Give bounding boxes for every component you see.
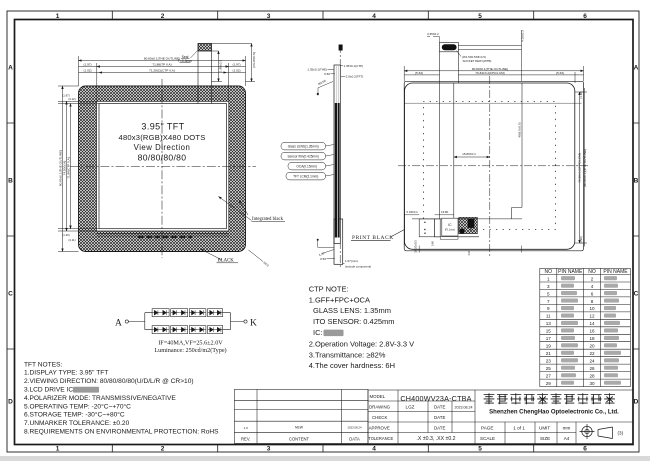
svg-text:80.80±0.1(THE OUTLINE): 80.80±0.1(THE OUTLINE) bbox=[144, 56, 180, 60]
svg-text:3.LCD DRIVE IC: 3.LCD DRIVE IC bbox=[24, 387, 73, 394]
svg-text:UMIT: UMIT bbox=[539, 426, 550, 431]
svg-text:20: 20 bbox=[589, 344, 595, 349]
svg-text:3: 3 bbox=[547, 284, 550, 289]
svg-text:1.0: 1.0 bbox=[244, 426, 249, 430]
svg-text:SCALE: SCALE bbox=[480, 436, 495, 441]
svg-text:8.REQUIREMENTS ON ENVIRONMENTA: 8.REQUIREMENTS ON ENVIRONMENTAL PROTECTI… bbox=[24, 429, 219, 436]
svg-text:OCA(0.15mm): OCA(0.15mm) bbox=[296, 165, 317, 169]
svg-text:2: 2 bbox=[591, 276, 594, 281]
svg-text:1.35±0.1(CTP): 1.35±0.1(CTP) bbox=[344, 64, 364, 68]
svg-text:(1.97): (1.97) bbox=[83, 62, 91, 66]
svg-text:71.28(C)(CTP V.A): 71.28(C)(CTP V.A) bbox=[149, 68, 175, 72]
svg-text:5: 5 bbox=[478, 13, 482, 20]
svg-text:4: 4 bbox=[591, 284, 594, 289]
svg-text:Luminance: 250cd/m2(Type): Luminance: 250cd/m2(Type) bbox=[154, 347, 226, 354]
svg-text:2: 2 bbox=[161, 446, 165, 453]
svg-text:28: 28 bbox=[589, 374, 595, 379]
svg-text:2023.08.24: 2023.08.24 bbox=[455, 405, 473, 409]
svg-text:DATE: DATE bbox=[434, 425, 445, 430]
svg-text:PIN NAME: PIN NAME bbox=[603, 269, 628, 275]
svg-text:Shenzhen ChengHao Optoelectron: Shenzhen ChengHao Optoelectronic Co., Lt… bbox=[489, 410, 619, 416]
svg-text:CHECK: CHECK bbox=[372, 415, 387, 420]
svg-text:6: 6 bbox=[591, 291, 594, 296]
svg-text:(1.97): (1.97) bbox=[232, 62, 240, 66]
svg-text:A4: A4 bbox=[564, 436, 570, 441]
svg-text:DATA: DATA bbox=[349, 436, 360, 441]
svg-text:79.84±0.2(FPC/LCM): 79.84±0.2(FPC/LCM) bbox=[475, 71, 504, 75]
svg-text:1: 1 bbox=[56, 13, 60, 20]
svg-text:30: 30 bbox=[589, 381, 595, 386]
svg-text:24: 24 bbox=[589, 359, 595, 364]
svg-text:19.20±0.5: 19.20±0.5 bbox=[414, 240, 418, 253]
svg-text:1.07(mm): 1.07(mm) bbox=[345, 259, 358, 263]
svg-text:(1.40): (1.40) bbox=[62, 233, 69, 237]
svg-text:IF=40MA,VF=25.6±2.0V: IF=40MA,VF=25.6±2.0V bbox=[158, 340, 223, 347]
svg-text:GLASS LENS: 1.35mm: GLASS LENS: 1.35mm bbox=[313, 306, 391, 315]
svg-text:17: 17 bbox=[546, 336, 552, 341]
svg-text:4.10±0.3: 4.10±0.3 bbox=[520, 30, 524, 42]
svg-text:Glass LENS(1.35mm): Glass LENS(1.35mm) bbox=[288, 145, 319, 149]
svg-text:IC:: IC: bbox=[313, 328, 323, 337]
svg-text:3: 3 bbox=[267, 13, 271, 20]
svg-text:1.GFF+FPC+OCA: 1.GFF+FPC+OCA bbox=[309, 295, 370, 304]
svg-text:5.OPERATING TEMP: -20°C~+70°C: 5.OPERATING TEMP: -20°C~+70°C bbox=[24, 402, 131, 410]
svg-text:10: 10 bbox=[589, 306, 595, 311]
svg-text:3.95" TFT: 3.95" TFT bbox=[141, 122, 184, 132]
svg-text:0.33±0.1: 0.33±0.1 bbox=[407, 210, 419, 214]
svg-text:mm: mm bbox=[563, 426, 571, 431]
svg-text:15.80±0.1: 15.80±0.1 bbox=[462, 152, 476, 156]
svg-text:(include component): (include component) bbox=[345, 265, 371, 269]
svg-text:CH400WV23A-CTBA: CH400WV23A-CTBA bbox=[400, 394, 471, 403]
svg-text:19.80: 19.80 bbox=[441, 210, 449, 214]
svg-text:11: 11 bbox=[546, 314, 551, 319]
svg-text:(1.98): (1.98) bbox=[579, 236, 583, 243]
svg-text:View Direction: View Direction bbox=[134, 143, 191, 152]
svg-text:80/80/80/80: 80/80/80/80 bbox=[138, 153, 187, 163]
svg-text:DRAWING: DRAWING bbox=[369, 404, 391, 409]
svg-text:(3.12): (3.12) bbox=[68, 97, 75, 101]
svg-text:29: 29 bbox=[546, 381, 552, 386]
svg-text:2.Operation Voltage: 2.8V-3.3: 2.Operation Voltage: 2.8V-3.3 V bbox=[309, 340, 415, 349]
svg-text:A: A bbox=[115, 319, 122, 329]
svg-text:.X ±0.3, .XX ±0.2: .X ±0.3, .XX ±0.2 bbox=[416, 436, 455, 442]
svg-text:7.UNMARKER TOLERANCE: ±0.20: 7.UNMARKER TOLERANCE: ±0.20 bbox=[24, 420, 130, 427]
svg-text:40(9.5±0.5): 40(9.5±0.5) bbox=[517, 122, 521, 137]
svg-text:76.56±0.2(FPC/LCM): 76.56±0.2(FPC/LCM) bbox=[578, 153, 582, 182]
svg-text:6.STORAGE TEMP: -30°C~+80°C: 6.STORAGE TEMP: -30°C~+80°C bbox=[24, 411, 125, 419]
svg-text:PRINT BLACK: PRINT BLACK bbox=[352, 235, 394, 241]
svg-text:LGZ: LGZ bbox=[406, 405, 415, 410]
svg-text:12: 12 bbox=[589, 314, 595, 319]
svg-text:IC: IC bbox=[448, 223, 452, 227]
svg-text:(1.18): (1.18) bbox=[579, 91, 583, 98]
svg-text:NEW: NEW bbox=[295, 426, 304, 430]
svg-text:(80.80±0.1)(THE OUTLINE): (80.80±0.1)(THE OUTLINE) bbox=[583, 149, 587, 187]
svg-text:SOCKET 8WAY(WTB): SOCKET 8WAY(WTB) bbox=[463, 59, 492, 63]
svg-text:CTP NOTE:: CTP NOTE: bbox=[309, 285, 349, 294]
svg-text:1: 1 bbox=[56, 446, 60, 453]
svg-text:71.88(TP V.A): 71.88(TP V.A) bbox=[152, 62, 171, 66]
svg-text:K: K bbox=[250, 319, 257, 329]
svg-text:5: 5 bbox=[547, 291, 550, 296]
svg-text:21: 21 bbox=[546, 351, 552, 356]
svg-text:APPROVE: APPROVE bbox=[369, 425, 390, 430]
svg-text:4.POLARIZER MODE: TRANSMISSIVE: 4.POLARIZER MODE: TRANSMISSIVE/NEGATIVE bbox=[24, 395, 176, 402]
svg-text:TFT LCM(2.1mm): TFT LCM(2.1mm) bbox=[293, 175, 318, 179]
svg-text:9: 9 bbox=[547, 306, 550, 311]
svg-text:B: B bbox=[8, 178, 13, 185]
svg-text:8: 8 bbox=[591, 299, 594, 304]
svg-text:6: 6 bbox=[583, 446, 587, 453]
svg-text:TFT NOTES:: TFT NOTES: bbox=[24, 361, 63, 368]
svg-text:13: 13 bbox=[546, 321, 552, 326]
svg-text:DATE: DATE bbox=[434, 404, 445, 409]
svg-text:B: B bbox=[634, 178, 639, 185]
svg-text:C: C bbox=[634, 291, 639, 298]
svg-text:DATE: DATE bbox=[434, 415, 445, 420]
svg-text:0.50: 0.50 bbox=[320, 257, 326, 261]
svg-text:1.85±0.3: 1.85±0.3 bbox=[219, 60, 223, 72]
svg-text:1: 1 bbox=[547, 276, 550, 281]
svg-text:0.60: 0.60 bbox=[431, 240, 435, 246]
svg-text:71.88(CTP V.A): 71.88(CTP V.A) bbox=[67, 157, 71, 179]
svg-text:1.DISPLAY TYPE: 3.95" TFT: 1.DISPLAY TYPE: 3.95" TFT bbox=[24, 370, 108, 377]
svg-text:NO: NO bbox=[588, 269, 596, 275]
svg-text:Sensor film(0.425mm): Sensor film(0.425mm) bbox=[288, 155, 319, 159]
svg-text:2: 2 bbox=[161, 13, 165, 20]
svg-text:PAGE: PAGE bbox=[481, 426, 493, 431]
svg-text:0.50: 0.50 bbox=[324, 72, 330, 76]
svg-text:REV.: REV. bbox=[241, 437, 250, 442]
svg-text:3: 3 bbox=[267, 446, 271, 453]
svg-text:25: 25 bbox=[546, 366, 552, 371]
svg-text:A: A bbox=[8, 65, 13, 72]
svg-text:(4.11): (4.11) bbox=[68, 238, 75, 242]
svg-text:Integrated black: Integrated black bbox=[252, 217, 284, 222]
svg-text:23: 23 bbox=[546, 359, 552, 364]
svg-text:(23.18±0.5): (23.18±0.5) bbox=[252, 52, 256, 68]
svg-text:27: 27 bbox=[546, 374, 552, 379]
svg-text:A: A bbox=[634, 65, 639, 72]
svg-text:7: 7 bbox=[547, 299, 550, 304]
svg-text:MODEL: MODEL bbox=[370, 394, 386, 399]
svg-text:3.Transmittance: ≥82%: 3.Transmittance: ≥82% bbox=[309, 350, 386, 359]
svg-text:ITO SENSOR: 0.425mm: ITO SENSOR: 0.425mm bbox=[313, 317, 395, 326]
svg-text:18: 18 bbox=[589, 336, 595, 341]
svg-text:1.00: 1.00 bbox=[467, 250, 471, 256]
svg-text:NO: NO bbox=[545, 269, 553, 275]
svg-text:26: 26 bbox=[589, 366, 595, 371]
svg-text:480x3(RGB)X480 DOTS: 480x3(RGB)X480 DOTS bbox=[119, 133, 206, 142]
svg-text:22: 22 bbox=[589, 351, 595, 356]
svg-text:PIN NAME: PIN NAME bbox=[558, 269, 583, 275]
svg-text:TOLERANCE: TOLERANCE bbox=[368, 436, 393, 441]
svg-text:2023.08.24: 2023.08.24 bbox=[348, 426, 362, 430]
svg-text:D: D bbox=[8, 399, 13, 406]
svg-text:(3): (3) bbox=[618, 431, 624, 436]
svg-text:16: 16 bbox=[589, 329, 595, 334]
svg-text:5: 5 bbox=[478, 446, 482, 453]
svg-text:(1.02): (1.02) bbox=[232, 68, 240, 72]
svg-text:19: 19 bbox=[546, 344, 552, 349]
svg-text:(F1.1mm): (F1.1mm) bbox=[445, 230, 455, 232]
svg-text:SIZE: SIZE bbox=[540, 436, 550, 441]
svg-text:4.The cover hardness: 6H: 4.The cover hardness: 6H bbox=[309, 361, 395, 370]
svg-text:(5.63): (5.63) bbox=[415, 71, 423, 75]
svg-text:(1.02): (1.02) bbox=[83, 68, 91, 72]
svg-text:4: 4 bbox=[372, 446, 376, 453]
svg-text:3.35±0.2: 3.35±0.2 bbox=[427, 32, 439, 36]
svg-text:1 of 1: 1 of 1 bbox=[513, 426, 525, 431]
svg-text:14: 14 bbox=[589, 321, 595, 326]
svg-text:(5.63): (5.63) bbox=[556, 71, 564, 75]
svg-text:6: 6 bbox=[583, 13, 587, 20]
svg-text:2.VIEWING DIRECTION: 80/80/80/: 2.VIEWING DIRECTION: 80/80/80/80(U/D/L/R… bbox=[24, 378, 194, 385]
svg-text:4: 4 bbox=[372, 13, 376, 20]
svg-text:CONTENT: CONTENT bbox=[289, 436, 310, 441]
svg-text:15: 15 bbox=[546, 329, 552, 334]
svg-text:2.5±0.2(TFT): 2.5±0.2(TFT) bbox=[346, 75, 363, 79]
svg-text:D: D bbox=[634, 399, 639, 406]
svg-text:C: C bbox=[8, 291, 13, 298]
